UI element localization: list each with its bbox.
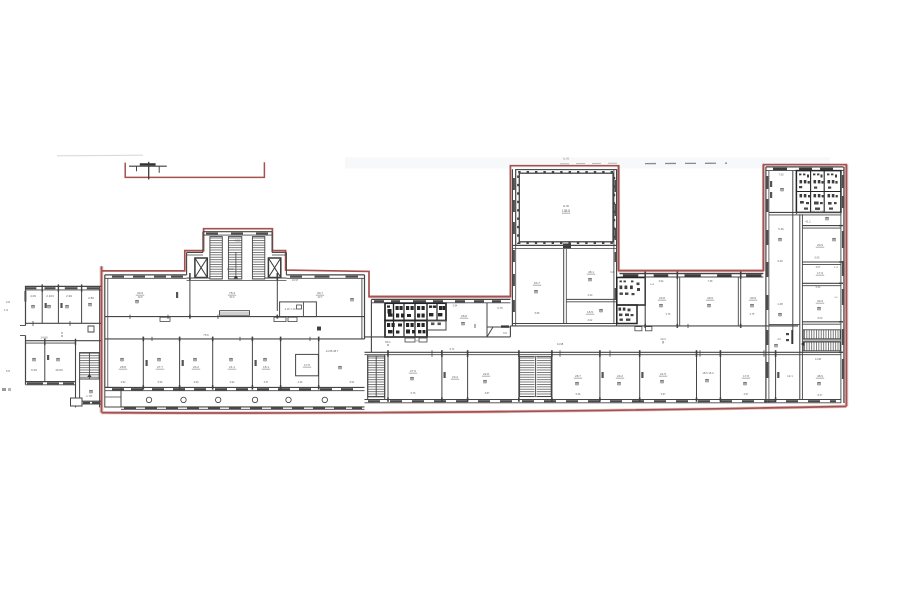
svg-text:1.78: 1.78 xyxy=(86,394,92,398)
svg-text:20.7: 20.7 xyxy=(318,296,323,299)
svg-text:3.75: 3.75 xyxy=(750,313,755,316)
svg-text:14.98: 14.98 xyxy=(815,358,822,361)
svg-text:6.93: 6.93 xyxy=(31,368,37,372)
svg-text:30.9: 30.9 xyxy=(137,291,143,295)
svg-text:21.1: 21.1 xyxy=(229,365,235,369)
svg-text:14.00: 14.00 xyxy=(227,267,234,271)
svg-text:6.8: 6.8 xyxy=(6,369,10,373)
svg-text:4.16 7.10: 4.16 7.10 xyxy=(285,307,296,311)
svg-text:24.2: 24.2 xyxy=(617,374,623,378)
svg-text:3.47: 3.47 xyxy=(264,381,269,384)
svg-text:54.3: 54.3 xyxy=(230,296,235,299)
svg-text:28.8: 28.8 xyxy=(120,365,126,369)
svg-text:30.7: 30.7 xyxy=(317,291,323,295)
svg-text:14.98: 14.98 xyxy=(557,342,564,346)
svg-text:1.9: 1.9 xyxy=(4,308,8,312)
svg-text:6.71: 6.71 xyxy=(450,348,455,351)
svg-text:30.6: 30.6 xyxy=(750,296,756,300)
svg-text:27.6: 27.6 xyxy=(410,369,416,373)
svg-text:10.4: 10.4 xyxy=(660,337,666,341)
svg-text:5.96: 5.96 xyxy=(535,312,540,315)
svg-text:5.06: 5.06 xyxy=(815,257,820,260)
svg-text:4.07: 4.07 xyxy=(816,266,821,269)
svg-text:48.1: 48.1 xyxy=(588,270,594,274)
svg-text:5.46: 5.46 xyxy=(576,393,581,396)
svg-text:16.5: 16.5 xyxy=(587,310,593,314)
svg-text:2.89: 2.89 xyxy=(88,296,94,300)
svg-text:8.47: 8.47 xyxy=(818,394,823,397)
svg-text:21.5: 21.5 xyxy=(660,372,666,376)
svg-text:22.8: 22.8 xyxy=(483,372,489,376)
svg-text:3.40: 3.40 xyxy=(777,259,783,263)
svg-text:41.2: 41.2 xyxy=(805,220,811,224)
svg-text:18.5 16.2: 18.5 16.2 xyxy=(702,371,714,375)
svg-text:5.95: 5.95 xyxy=(158,381,163,384)
svg-text:23.2: 23.2 xyxy=(452,375,458,379)
svg-text:3.87: 3.87 xyxy=(485,392,490,395)
svg-text:12.1: 12.1 xyxy=(787,374,793,378)
svg-text:24.2: 24.2 xyxy=(193,365,199,369)
svg-text:2.46: 2.46 xyxy=(298,381,303,384)
svg-text:3.94: 3.94 xyxy=(659,280,664,283)
svg-text:4.09: 4.09 xyxy=(30,294,36,298)
svg-text:4.90: 4.90 xyxy=(194,381,199,384)
svg-text:80.1: 80.1 xyxy=(385,340,391,344)
svg-text:2.97: 2.97 xyxy=(744,393,749,396)
svg-text:78.3: 78.3 xyxy=(229,291,235,295)
svg-text:23.8: 23.8 xyxy=(659,296,665,300)
svg-text:3.97: 3.97 xyxy=(661,393,666,396)
svg-text:4.76: 4.76 xyxy=(666,313,671,316)
svg-text:2.8: 2.8 xyxy=(6,300,10,304)
svg-text:30.3: 30.3 xyxy=(817,299,823,303)
svg-text:5.93: 5.93 xyxy=(816,286,821,289)
svg-text:1.48: 1.48 xyxy=(777,302,783,306)
svg-text:4.80: 4.80 xyxy=(234,239,240,243)
svg-text:19.9: 19.9 xyxy=(138,296,143,299)
svg-text:17.0: 17.0 xyxy=(304,363,310,367)
svg-text:7.50: 7.50 xyxy=(778,173,784,177)
svg-text:5.51: 5.51 xyxy=(350,381,355,384)
svg-text:49.6: 49.6 xyxy=(707,296,713,300)
svg-text:63.7: 63.7 xyxy=(534,281,540,285)
svg-text:14.98 48.7: 14.98 48.7 xyxy=(326,349,339,353)
svg-text:4.2: 4.2 xyxy=(777,338,781,341)
svg-text:75.6: 75.6 xyxy=(203,333,209,337)
svg-text:11.80: 11.80 xyxy=(563,157,570,161)
svg-text:2.103: 2.103 xyxy=(46,294,54,298)
svg-text:10.60: 10.60 xyxy=(55,368,63,372)
svg-text:28.7: 28.7 xyxy=(575,374,581,378)
svg-text:4.92: 4.92 xyxy=(121,381,126,384)
svg-text:48.9: 48.9 xyxy=(817,374,823,378)
svg-text:4.40: 4.40 xyxy=(588,294,593,297)
svg-text:8.00: 8.00 xyxy=(818,317,823,320)
svg-text:11.80: 11.80 xyxy=(563,205,570,208)
svg-text:5.46: 5.46 xyxy=(778,227,784,231)
svg-text:26.8: 26.8 xyxy=(461,314,467,318)
svg-text:138.8: 138.8 xyxy=(562,209,570,213)
svg-text:4.92: 4.92 xyxy=(230,381,235,384)
svg-text:7.48: 7.48 xyxy=(708,280,713,283)
svg-text:2.99: 2.99 xyxy=(66,294,72,298)
svg-text:6.76: 6.76 xyxy=(411,392,416,395)
svg-text:6.5: 6.5 xyxy=(503,331,507,335)
svg-text:3.02: 3.02 xyxy=(588,319,593,322)
svg-text:18.1: 18.1 xyxy=(263,365,269,369)
svg-text:20.9: 20.9 xyxy=(817,243,823,247)
svg-text:13.97: 13.97 xyxy=(292,278,299,282)
svg-text:17.9: 17.9 xyxy=(817,271,823,275)
svg-text:27.7: 27.7 xyxy=(157,365,163,369)
svg-text:17.8: 17.8 xyxy=(743,374,749,378)
svg-text:6.75: 6.75 xyxy=(497,306,503,310)
svg-text:2.94: 2.94 xyxy=(453,305,458,308)
